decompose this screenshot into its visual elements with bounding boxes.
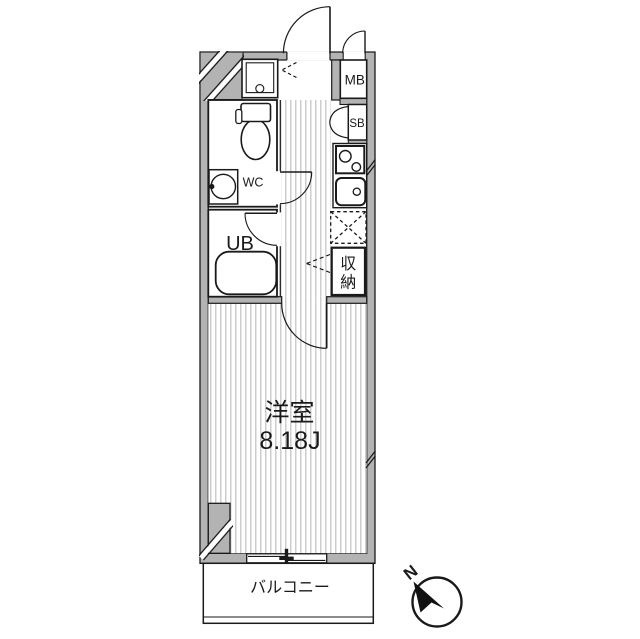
shoe-box-label: SB: [349, 118, 365, 130]
shoe-box: SB: [330, 105, 367, 141]
entrance-opening: [287, 51, 330, 61]
meter-box-door: [343, 31, 365, 53]
compass: N: [400, 561, 461, 626]
meter-box-label: MB: [345, 73, 365, 88]
bathtub-icon: [216, 252, 277, 295]
kitchen-counter: [333, 144, 367, 208]
storage-label-char2: 納: [340, 274, 356, 292]
main-room: 洋室 8.18J: [259, 399, 320, 455]
storage-label-char1: 収: [340, 255, 356, 273]
main-room-size: 8.18J: [259, 427, 320, 455]
entrance-door: [283, 7, 330, 54]
wash-basin-icon: [209, 170, 238, 204]
main-room-name: 洋室: [264, 399, 314, 427]
wc-label: WC: [243, 176, 264, 190]
floor-plan: WC UB MB SB: [0, 0, 640, 639]
unit-bath-label: UB: [226, 233, 254, 255]
balcony-label: バルコニー: [250, 580, 330, 597]
washing-machine-area: [242, 59, 278, 97]
bathroom: UB: [208, 210, 277, 297]
sink-icon: [336, 178, 365, 205]
compass-north-label: N: [400, 561, 421, 584]
floor-plan-canvas: WC UB MB SB: [0, 0, 640, 639]
meter-box: MB: [340, 60, 366, 98]
wc-room: WC: [208, 100, 277, 207]
refrigerator-space: [331, 212, 366, 244]
balcony: バルコニー: [203, 563, 373, 623]
stove-icon: [336, 146, 364, 173]
shoe-box-doors: [330, 107, 349, 139]
hallway-floor: [280, 100, 330, 297]
entrance-dashed-mark: [282, 63, 297, 78]
